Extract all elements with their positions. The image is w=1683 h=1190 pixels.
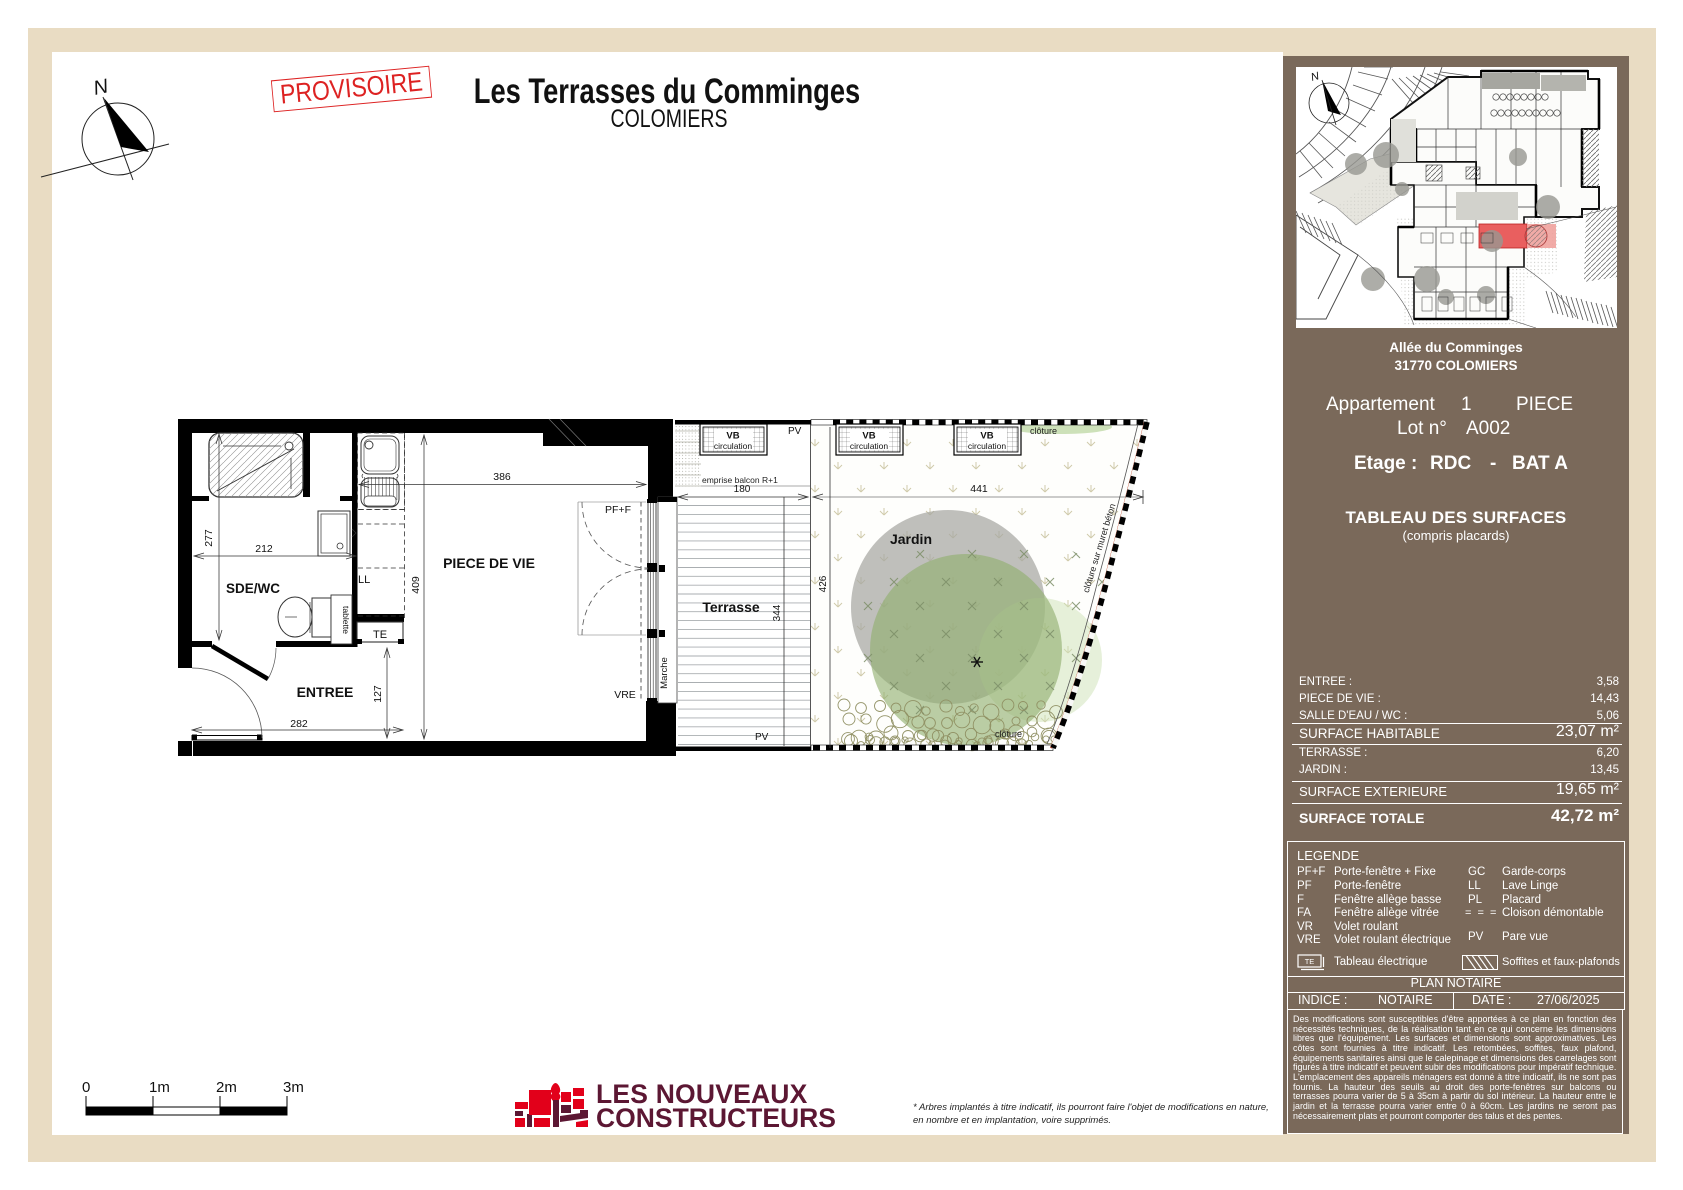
svg-text:circulation: circulation	[714, 441, 753, 451]
svg-text:SDE/WC: SDE/WC	[226, 581, 280, 596]
svg-text:VB: VB	[726, 431, 739, 442]
svg-text:PV: PV	[788, 426, 802, 437]
svg-text:N: N	[1310, 70, 1321, 84]
svg-text:344: 344	[772, 604, 783, 621]
svg-text:clôture: clôture	[995, 729, 1022, 739]
svg-text:3m: 3m	[283, 1079, 304, 1096]
svg-text:180: 180	[734, 484, 751, 495]
svg-text:CONSTRUCTEURS: CONSTRUCTEURS	[596, 1103, 836, 1130]
svg-text:circulation: circulation	[850, 441, 889, 451]
svg-text:VRE: VRE	[614, 689, 636, 701]
svg-text:LL: LL	[358, 574, 370, 586]
svg-text:282: 282	[290, 718, 308, 730]
svg-text:386: 386	[493, 471, 511, 483]
svg-text:426: 426	[818, 575, 829, 592]
svg-text:1m: 1m	[149, 1079, 170, 1096]
svg-text:clôture: clôture	[1030, 426, 1057, 436]
svg-text:PF+F: PF+F	[605, 504, 631, 516]
svg-text:TE: TE	[373, 629, 387, 641]
svg-text:Jardin: Jardin	[890, 531, 932, 547]
svg-text:Marche: Marche	[659, 657, 670, 689]
svg-text:TE: TE	[1305, 957, 1315, 966]
svg-text:441: 441	[970, 483, 988, 495]
svg-text:0: 0	[82, 1079, 90, 1096]
svg-text:PIECE DE VIE: PIECE DE VIE	[443, 555, 535, 571]
svg-text:127: 127	[372, 685, 384, 703]
svg-text:ENTREE: ENTREE	[297, 684, 354, 700]
svg-text:VB: VB	[862, 431, 875, 442]
svg-text:Terrasse: Terrasse	[702, 599, 760, 615]
svg-text:2m: 2m	[216, 1079, 237, 1096]
svg-text:212: 212	[255, 543, 273, 555]
svg-text:tablette: tablette	[341, 606, 351, 634]
svg-text:409: 409	[410, 576, 422, 594]
svg-text:circulation: circulation	[968, 441, 1007, 451]
svg-text:277: 277	[203, 529, 215, 547]
svg-text:PV: PV	[755, 732, 769, 743]
svg-text:VB: VB	[980, 431, 993, 442]
svg-text:N: N	[91, 75, 110, 100]
